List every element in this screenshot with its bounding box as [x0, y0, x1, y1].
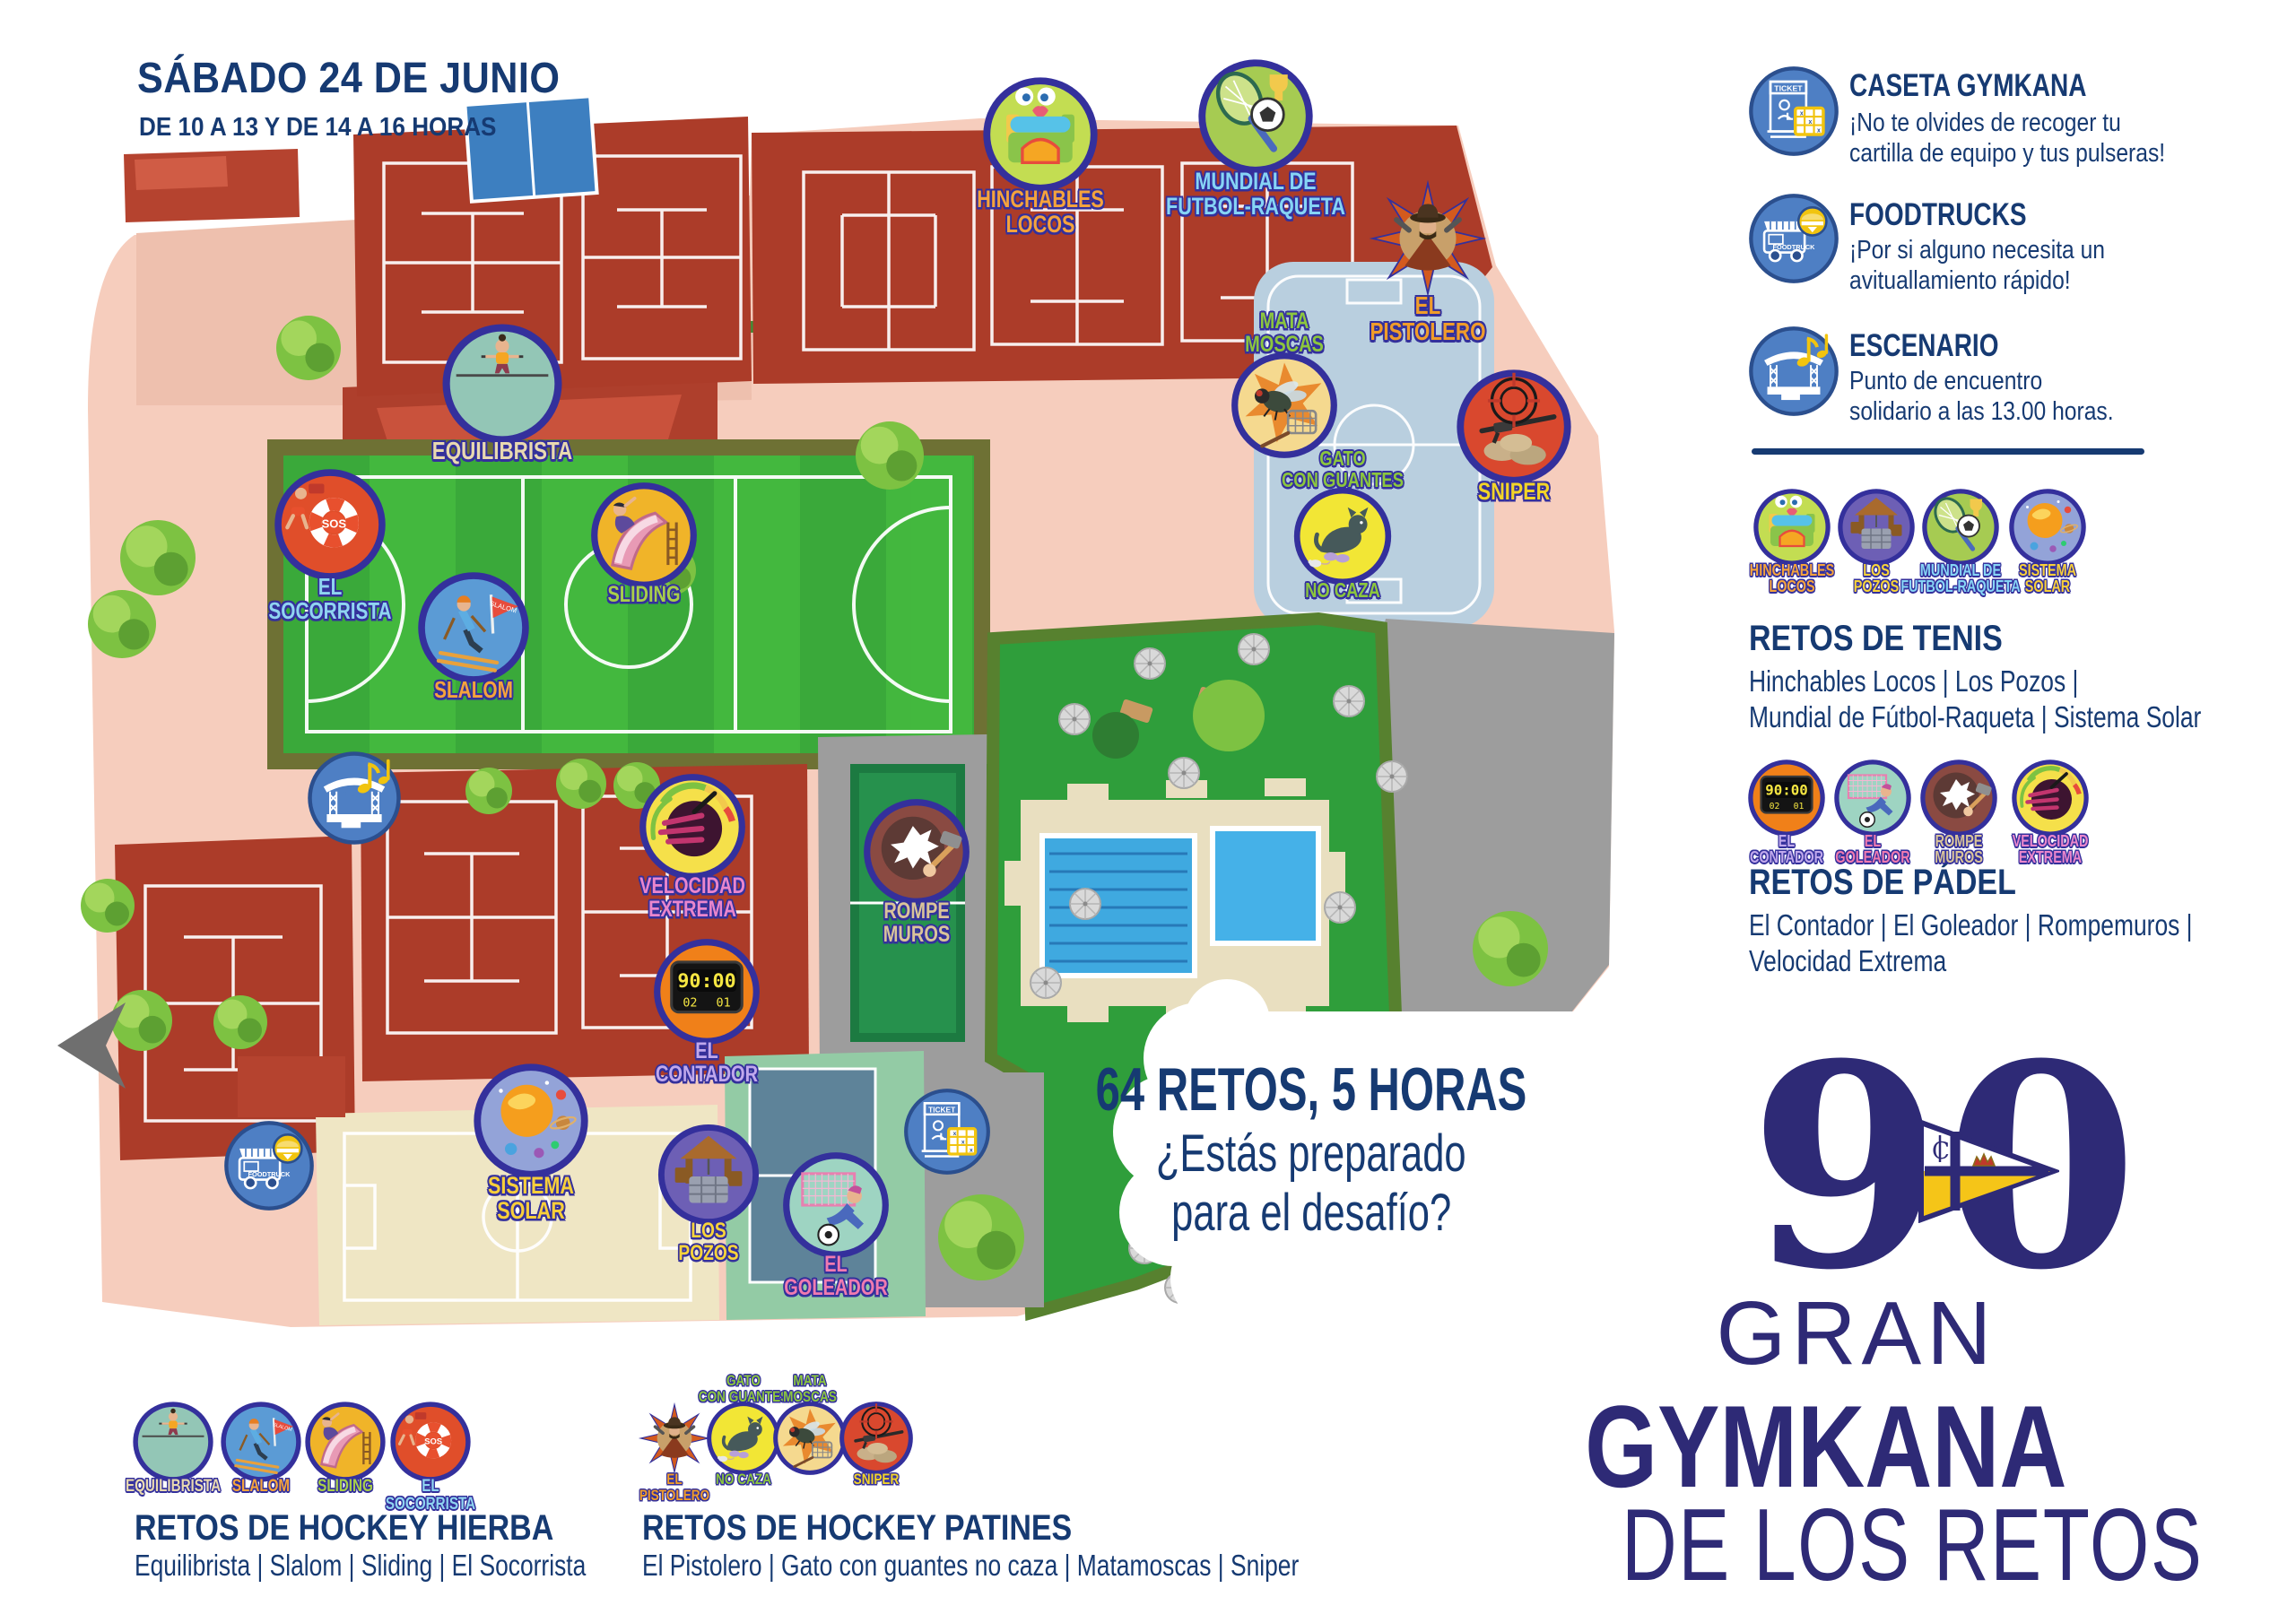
legend-caseta-title: CASETA GYMKANA — [1849, 68, 2146, 104]
blue-court — [465, 96, 596, 202]
badge-sliding: SLIDING — [588, 480, 700, 591]
svg-text:02: 02 — [1770, 802, 1780, 811]
badge-gato-con-guantes: GATOCON GUANTESNO CAZA — [1291, 485, 1394, 587]
badge-slalom: SLALOM SLALOM — [415, 569, 532, 686]
foodtrucks-icon: FOODTRUCK — [1747, 192, 1840, 285]
logo-de-los-retos: DE LOS RETOS — [1525, 1487, 2063, 1604]
group-padel-line1: El Contador | El Goleador | Rompemuros | — [1749, 907, 2296, 943]
badge-el-contador: 90:00 02 01ELCONTADOR — [651, 936, 762, 1047]
legend-foodtrucks-desc: ¡Por si alguno necesita un avituallamien… — [1849, 235, 2150, 296]
group-hierba-line: Equilibrista | Slalom | Sliding | El Soc… — [135, 1548, 699, 1584]
badge-sniper: SNIPER — [838, 1400, 915, 1477]
group-tenis-line1: Hinchables Locos | Los Pozos | — [1749, 664, 2161, 699]
group-patines-line: El Pistolero | Gato con guantes no caza … — [642, 1548, 1463, 1584]
badge-rompe-muros: ROMPEMUROS — [1918, 758, 1999, 838]
group-padel-title: RETOS DE PÁDEL — [1749, 863, 2063, 903]
badge-sniper: SNIPER — [1454, 367, 1574, 487]
badge-equilibrista: EQUILIBRISTA — [131, 1400, 215, 1484]
svg-text:x: x — [953, 1131, 957, 1137]
group-tenis-title: RETOS DE TENIS — [1749, 619, 2048, 659]
group-padel-line2: Velocidad Extrema — [1749, 943, 1996, 979]
svg-text:TICKET: TICKET — [1774, 83, 1803, 92]
legend-foodtrucks-title: FOODTRUCKS — [1849, 197, 2071, 233]
legend-caseta-desc: ¡No te olvides de recoger tu cartilla de… — [1849, 108, 2221, 169]
badge-sistema-solar: SISTEMASOLAR — [2007, 487, 2088, 568]
badge-el-contador: 90:00 02 01ELCONTADOR — [1746, 758, 1827, 838]
badge-equilibrista: EQUILIBRISTA — [439, 321, 565, 447]
badge-los-pozos: LOSPOZOS — [1836, 487, 1917, 568]
badge-sistema-solar: SISTEMASOLAR — [471, 1061, 591, 1181]
badge-mata-moscas: MATAMOSCAS — [1229, 350, 1340, 461]
gymkana-poster: SÁBADO 24 DE JUNIO DE 10 A 13 Y DE 14 A … — [0, 0, 2296, 1623]
badge-hinchables-locos: HINCHABLESLOCOS — [980, 74, 1100, 195]
svg-text:x: x — [1817, 127, 1821, 134]
svg-text:02: 02 — [683, 997, 697, 1011]
badge-velocidad-extrema: VELOCIDADEXTREMA — [637, 771, 748, 882]
badge-sliding: SLIDING — [303, 1400, 387, 1484]
svg-text:01: 01 — [1794, 802, 1805, 811]
badge-slalom: SLALOM SLALOM — [219, 1400, 303, 1484]
escenario-icon — [1747, 325, 1840, 418]
group-patines-title: RETOS DE HOCKEY PATINES — [642, 1508, 1148, 1549]
badge-hinchables-locos: HINCHABLESLOCOS — [1752, 487, 1832, 568]
svg-text:SOS: SOS — [322, 516, 347, 530]
foodtruck-map-icon: FOODTRUCK — [222, 1119, 316, 1212]
legend-divider — [1752, 448, 2144, 455]
escenario-map-icon — [306, 750, 403, 846]
badge-mundial-futbol-raqueta: MUNDIAL DEFUTBOL-RAQUETA — [1196, 56, 1316, 177]
legend-escenario-title: ESCENARIO — [1849, 328, 2036, 364]
badge-rompe-muros: ROMPEMUROS — [861, 796, 972, 907]
svg-text:SOS: SOS — [424, 1436, 442, 1445]
svg-text:x: x — [961, 1139, 965, 1145]
svg-text:x: x — [1808, 119, 1812, 126]
badge-los-pozos: LOSPOZOS — [656, 1122, 761, 1228]
badge-el-pistolero: ELPISTOLERO — [636, 1400, 713, 1477]
group-hierba-title: RETOS DE HOCKEY HIERBA — [135, 1508, 628, 1549]
svg-text:TICKET: TICKET — [928, 1105, 955, 1114]
svg-text:01: 01 — [717, 997, 731, 1011]
badge-velocidad-extrema: VELOCIDADEXTREMA — [2010, 758, 2091, 838]
badge-el-socorrista: SOSELSOCORRISTA — [388, 1400, 473, 1484]
badge-el-goleador: ELGOLEADOR — [780, 1150, 891, 1261]
logo-gran: GRAN — [1525, 1282, 2063, 1385]
caseta-gymkana-icon: TICKET x x x — [1747, 65, 1840, 158]
badge-el-goleador: ELGOLEADOR — [1832, 758, 1913, 838]
event-date-title: SÁBADO 24 DE JUNIO — [137, 54, 607, 103]
promo-text: 64 RETOS, 5 HORAS ¿Estás preparado para … — [1012, 1055, 1611, 1243]
group-tenis-line2: Mundial de Fútbol-Raqueta | Sistema Sola… — [1749, 699, 2296, 735]
badge-mundial-futbol-raqueta: MUNDIAL DEFUTBOL-RAQUETA — [1920, 487, 2001, 568]
svg-text:x: x — [970, 1148, 973, 1154]
legend-escenario-desc: Punto de encuentro solidario a las 13.00… — [1849, 366, 2161, 427]
badge-el-pistolero: ELPISTOLERO — [1365, 176, 1491, 301]
club-pennant-icon: C — [1918, 1119, 2059, 1223]
svg-text:90:00: 90:00 — [1765, 781, 1807, 798]
event-hours: DE 10 A 13 Y DE 14 A 16 HORAS — [139, 113, 536, 143]
badge-el-socorrista: SOSELSOCORRISTA — [272, 466, 388, 583]
svg-text:x: x — [1800, 110, 1804, 117]
svg-text:90:00: 90:00 — [677, 970, 735, 993]
ticket-map-icon: TICKET x x x — [902, 1087, 992, 1176]
